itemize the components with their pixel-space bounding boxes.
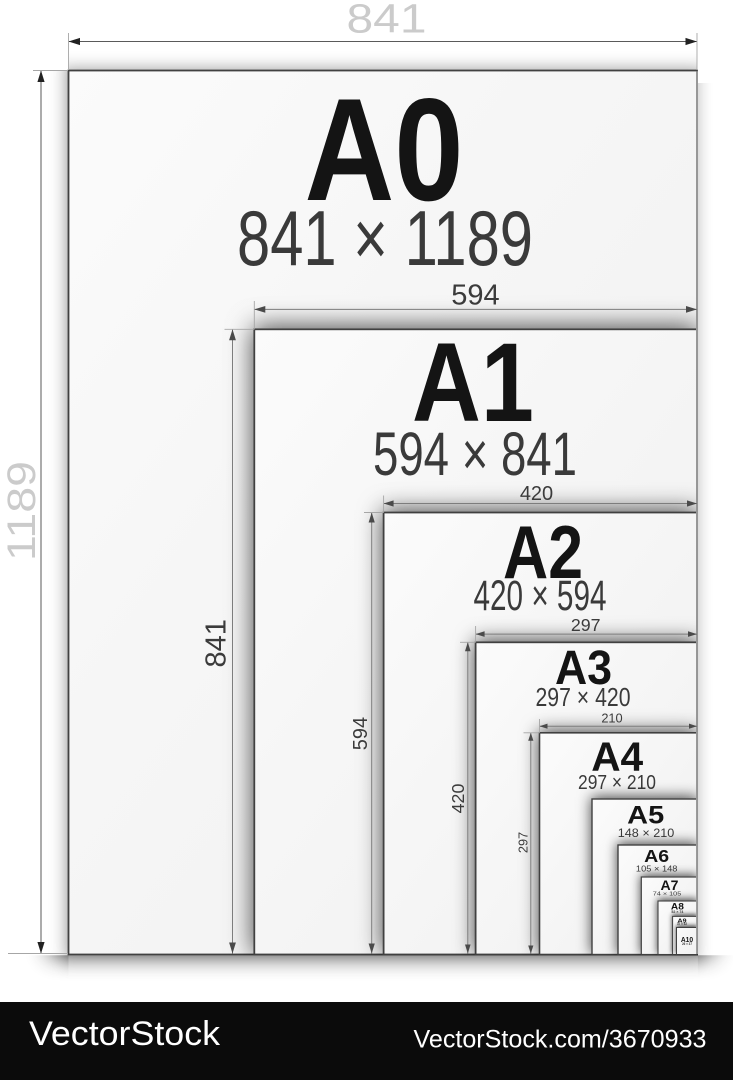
svg-text:297: 297	[515, 832, 530, 853]
svg-text:VectorStock.com/3670933: VectorStock.com/3670933	[414, 1026, 707, 1054]
svg-text:841: 841	[201, 619, 233, 667]
svg-text:297 × 420: 297 × 420	[536, 682, 631, 712]
svg-text:297: 297	[571, 615, 601, 635]
svg-text:420: 420	[520, 483, 553, 505]
svg-text:37 × 52: 37 × 52	[677, 922, 687, 926]
svg-text:420 × 594: 420 × 594	[474, 572, 607, 620]
svg-text:420: 420	[448, 784, 468, 814]
svg-text:VectorStock: VectorStock	[29, 1015, 221, 1053]
svg-text:105 × 148: 105 × 148	[636, 863, 678, 873]
svg-text:1189: 1189	[0, 461, 44, 561]
svg-text:26 × 37: 26 × 37	[682, 942, 692, 946]
svg-text:594: 594	[451, 279, 499, 311]
svg-text:74 × 105: 74 × 105	[653, 891, 682, 897]
svg-text:594: 594	[350, 717, 372, 750]
svg-text:52 × 74: 52 × 74	[671, 909, 684, 914]
svg-text:148 × 210: 148 × 210	[618, 826, 675, 840]
svg-text:841 × 1189: 841 × 1189	[237, 194, 533, 282]
svg-text:297 × 210: 297 × 210	[578, 772, 656, 794]
svg-text:594 × 841: 594 × 841	[373, 420, 577, 488]
svg-text:210: 210	[601, 711, 622, 726]
svg-text:841: 841	[347, 0, 427, 42]
